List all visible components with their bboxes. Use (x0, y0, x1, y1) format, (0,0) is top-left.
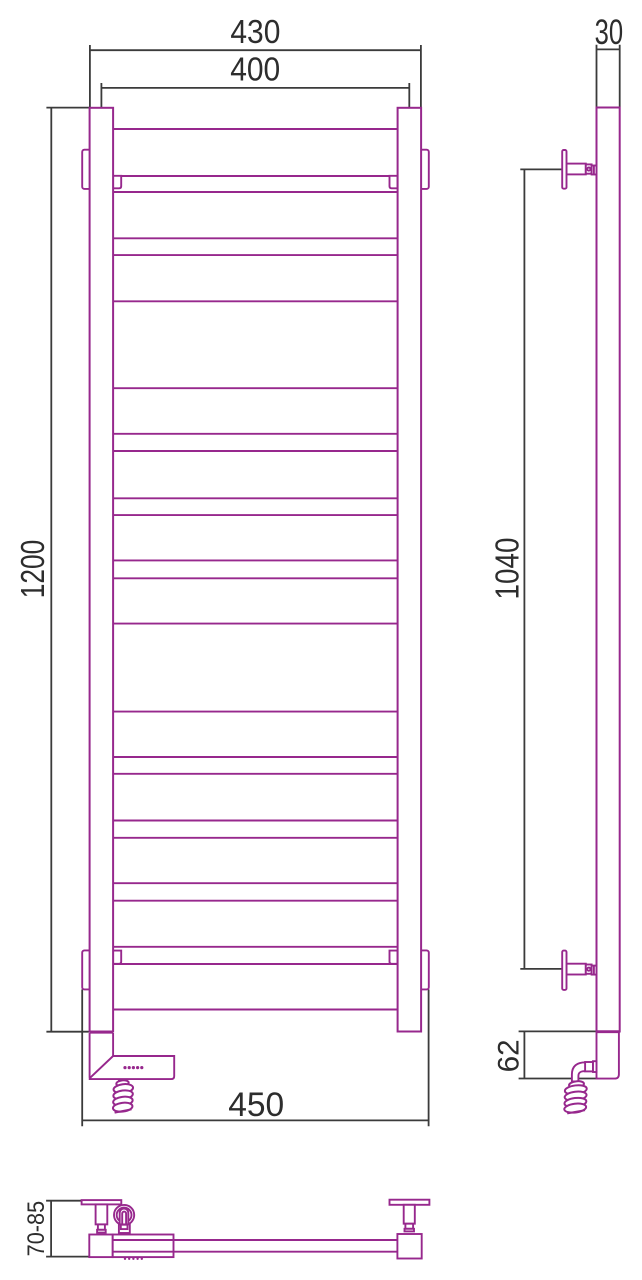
svg-text:30: 30 (595, 13, 624, 52)
svg-text:1200: 1200 (14, 540, 51, 599)
svg-text:430: 430 (230, 13, 280, 50)
svg-text:62: 62 (493, 1039, 526, 1072)
svg-text:70-85: 70-85 (23, 1201, 50, 1257)
svg-text:1040: 1040 (489, 538, 526, 600)
svg-text:400: 400 (230, 51, 280, 88)
svg-text:450: 450 (228, 1086, 284, 1124)
